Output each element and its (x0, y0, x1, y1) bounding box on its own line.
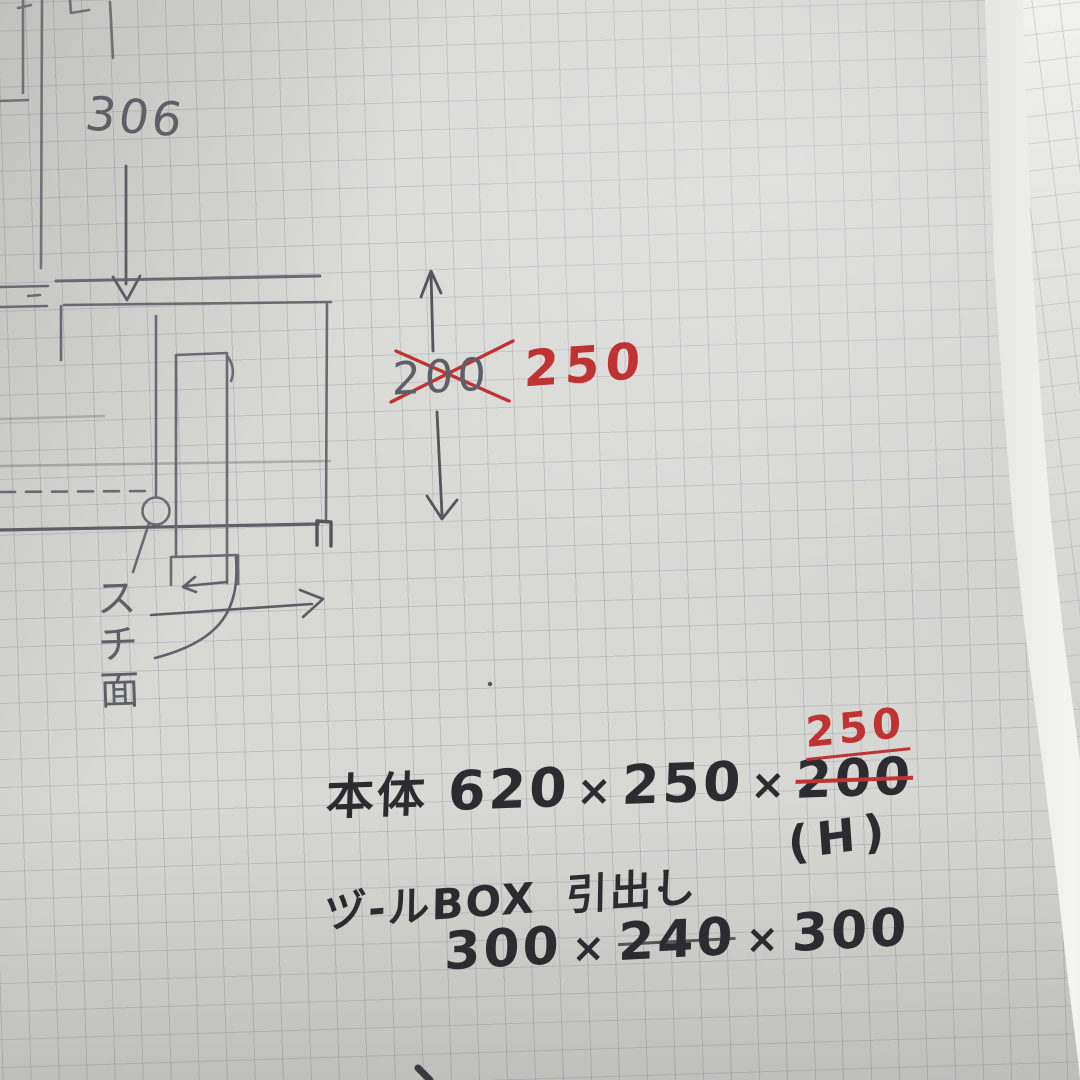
revised-height-label: 250 (523, 332, 647, 399)
cabinet-section-drawing (0, 276, 331, 585)
side-char-1: ス (96, 575, 138, 622)
dim-arrow-up-icon (421, 271, 441, 351)
toolbox-height: 300 (791, 898, 909, 964)
stray-dot (488, 682, 492, 686)
body-height-group: 200 250 (H) (795, 747, 915, 811)
bottom-edge-mark (418, 1068, 430, 1080)
body-width: 620 (447, 756, 571, 823)
body-label: 本体 (325, 755, 429, 829)
multiply-sign: × (750, 759, 790, 809)
side-vertical-label: ス チ 面 (96, 575, 141, 714)
paper-sheet: 306 200 250 ス チ 面 本体 620 × 250 × 200 250… (0, 0, 1080, 1080)
multiply-sign: × (576, 765, 616, 815)
drawer-swing-arc (155, 557, 237, 658)
body-depth: 250 (621, 750, 745, 817)
toolbox-width: 300 (444, 916, 562, 982)
old-height-label: 200 (392, 347, 491, 405)
side-char-3: 面 (99, 667, 141, 714)
toolbox-depth: 240 (618, 907, 736, 973)
photo-of-grid-notebook: 306 200 250 ス チ 面 本体 620 × 250 × 200 250… (0, 0, 1080, 1080)
pull-direction-arrow-icon (151, 590, 323, 617)
side-char-2: チ (97, 621, 139, 668)
dimension-306-label: 306 (82, 87, 189, 148)
multiply-sign: × (571, 925, 608, 973)
multiply-sign: × (745, 915, 782, 963)
body-height-new: 250 (804, 697, 909, 761)
dim-arrow-down-icon (427, 412, 457, 519)
